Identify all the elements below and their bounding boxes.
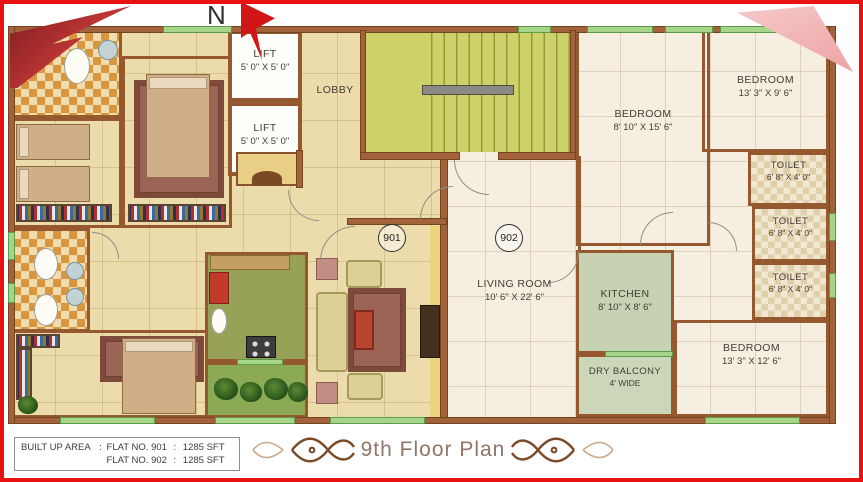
- floor-plan: LIFT 5' 0" X 5' 0" LIFT 5' 0" X 5' 0" LO…: [8, 26, 836, 424]
- plant: [288, 382, 308, 402]
- plant: [214, 378, 238, 400]
- side-table: [316, 382, 338, 404]
- toilet-fixture: [34, 248, 58, 280]
- built-up-area-box: BUILT UP AREA : FLAT NO. 901 : 1285 SFT …: [14, 437, 240, 471]
- flat-area: 1285 SFT: [183, 454, 233, 467]
- stair-wall-bottom-a: [360, 152, 460, 160]
- bedroom-902-top: [576, 30, 710, 246]
- plant: [264, 378, 288, 400]
- bedroom-right-label: BEDROOM 13' 3" X 9' 6": [702, 74, 829, 100]
- lift-1-label: LIFT 5' 0" X 5' 0": [230, 48, 300, 74]
- wardrobe: [128, 204, 226, 222]
- entrance-901: [236, 152, 298, 186]
- room-dims: 8' 10" X 8' 6": [576, 302, 674, 314]
- room-dims: 8' 10" X 15' 6": [576, 122, 710, 134]
- toilet-fixture: [34, 294, 58, 326]
- separator: :: [174, 441, 183, 454]
- plant: [18, 396, 38, 414]
- sink-fixture: [66, 262, 84, 280]
- room-dims: 6' 8" X 4' 0": [752, 284, 829, 295]
- window: [330, 417, 425, 424]
- window: [587, 26, 653, 33]
- kitchen-label: KITCHEN 8' 10" X 8' 6": [576, 288, 674, 314]
- sofa: [316, 292, 348, 372]
- plan-title-group: 9th Floor Plan: [248, 434, 618, 466]
- bed: [16, 166, 90, 202]
- room-dims: 4' WIDE: [576, 378, 674, 389]
- room-name: BEDROOM: [702, 74, 829, 88]
- flat-area: 1285 SFT: [183, 441, 233, 454]
- stair-wall-right: [570, 30, 576, 160]
- sink-fixture: [66, 288, 84, 306]
- ornament-icon: [581, 441, 615, 459]
- room-name: LIFT: [230, 48, 300, 62]
- ornament-icon: [510, 437, 576, 463]
- flat-number-badge-901: 901: [378, 224, 406, 252]
- bed: [16, 124, 90, 160]
- kitchen-counter: [210, 255, 290, 270]
- wardrobe: [16, 348, 32, 400]
- room-name: LIVING ROOM: [448, 278, 581, 292]
- window: [605, 351, 673, 357]
- window: [665, 26, 713, 33]
- built-up-row: BUILT UP AREA : FLAT NO. 901 : 1285 SFT: [21, 441, 233, 454]
- flat-number: 901: [383, 232, 401, 244]
- separator: [99, 454, 106, 467]
- bedroom-902-bottom: [674, 320, 829, 417]
- room-dims: 13' 3" X 9' 6": [702, 88, 829, 100]
- stair-wall-bottom-b: [498, 152, 576, 160]
- flat-no: FLAT NO. 901: [107, 441, 174, 454]
- room-name: BEDROOM: [576, 108, 710, 122]
- side-table: [316, 258, 338, 280]
- lift-2-label: LIFT 5' 0" X 5' 0": [230, 122, 300, 148]
- entrance-arch: [252, 171, 282, 186]
- lobby-label: LOBBY: [304, 84, 366, 98]
- room-dims: 5' 0" X 5' 0": [230, 62, 300, 74]
- plant: [240, 382, 262, 402]
- coffee-table: [354, 310, 374, 350]
- bedroom-top-label: BEDROOM 8' 10" X 15' 6": [576, 108, 710, 134]
- window: [518, 26, 551, 33]
- window: [60, 417, 155, 424]
- bed: [146, 74, 210, 178]
- room-dims: 13' 3" X 12' 6": [674, 356, 829, 368]
- bed: [122, 338, 196, 414]
- flat-number-badge-902: 902: [495, 224, 523, 252]
- separator: :: [99, 441, 106, 454]
- room-dims: 5' 0" X 5' 0": [230, 136, 300, 148]
- room-name: KITCHEN: [576, 288, 674, 302]
- room-name: TOILET: [748, 160, 829, 172]
- window: [829, 273, 836, 298]
- room-dims: 10' 6" X 22' 6": [448, 292, 581, 304]
- room-name: DRY BALCONY: [576, 366, 674, 378]
- room-name: TOILET: [752, 216, 829, 228]
- window: [829, 213, 836, 241]
- floor-plan-page: N: [0, 0, 863, 482]
- room-dims: 6' 8" X 4' 0": [752, 228, 829, 239]
- page-title: 9th Floor Plan: [361, 438, 506, 462]
- sink-fixture: [98, 40, 118, 60]
- ornament-icon: [251, 441, 285, 459]
- stair-rail: [422, 85, 514, 95]
- living-room-label: LIVING ROOM 10' 6" X 22' 6": [448, 278, 581, 304]
- bedroom-bottom-label: BEDROOM 13' 3" X 12' 6": [674, 342, 829, 368]
- flat-no: FLAT NO. 902: [107, 454, 174, 467]
- ornament-icon: [290, 437, 356, 463]
- tv-unit: [420, 305, 440, 358]
- sofa: [346, 260, 382, 288]
- room-name: LOBBY: [304, 84, 366, 98]
- stove: [246, 336, 276, 358]
- kitchen-counter-red: [209, 272, 229, 304]
- built-up-row: FLAT NO. 902 : 1285 SFT: [21, 454, 233, 467]
- window: [215, 417, 295, 424]
- foyer-wall: [296, 150, 303, 188]
- kitchen-sink: [211, 308, 227, 334]
- room-name: BEDROOM: [674, 342, 829, 356]
- wardrobe: [16, 204, 112, 222]
- window: [8, 232, 15, 260]
- toilet-1-label: TOILET 6' 8" X 4' 0": [748, 160, 829, 183]
- window: [705, 417, 800, 424]
- toilet-3-label: TOILET 6' 8" X 4' 0": [752, 272, 829, 295]
- room-dims: 6' 8" X 4' 0": [748, 172, 829, 183]
- toilet-fixture: [64, 48, 90, 84]
- dry-balcony-label: DRY BALCONY 4' WIDE: [576, 366, 674, 389]
- wardrobe: [16, 334, 60, 348]
- separator: :: [174, 454, 183, 467]
- window: [8, 283, 15, 303]
- window: [237, 359, 283, 365]
- built-up-label: BUILT UP AREA: [21, 441, 99, 454]
- flat-number: 902: [500, 232, 518, 244]
- room-name: LIFT: [230, 122, 300, 136]
- toilet-2-label: TOILET 6' 8" X 4' 0": [752, 216, 829, 239]
- north-label: N: [207, 0, 226, 31]
- staircase: [366, 30, 570, 152]
- room-name: TOILET: [752, 272, 829, 284]
- sofa: [347, 373, 383, 400]
